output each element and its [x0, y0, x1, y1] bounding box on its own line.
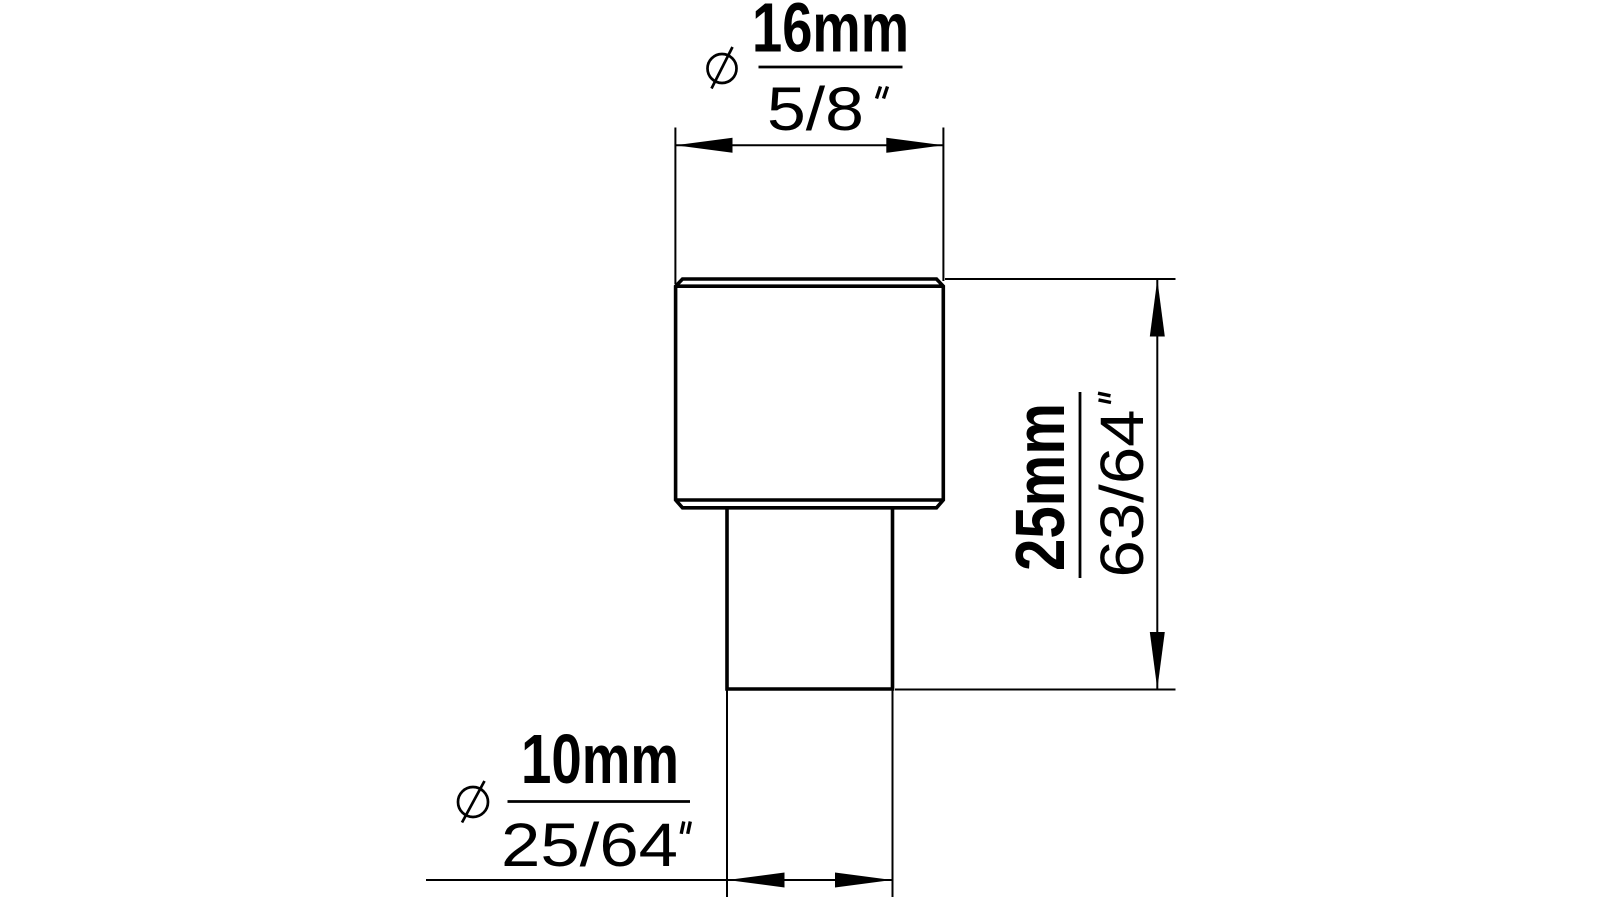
svg-text:25/64: 25/64: [501, 811, 678, 879]
svg-text:16mm: 16mm: [752, 0, 909, 67]
svg-text:10mm: 10mm: [521, 720, 679, 798]
svg-text:63/64: 63/64: [1088, 410, 1156, 578]
svg-text:25mm: 25mm: [1001, 403, 1079, 571]
svg-text:5/8: 5/8: [767, 75, 864, 143]
